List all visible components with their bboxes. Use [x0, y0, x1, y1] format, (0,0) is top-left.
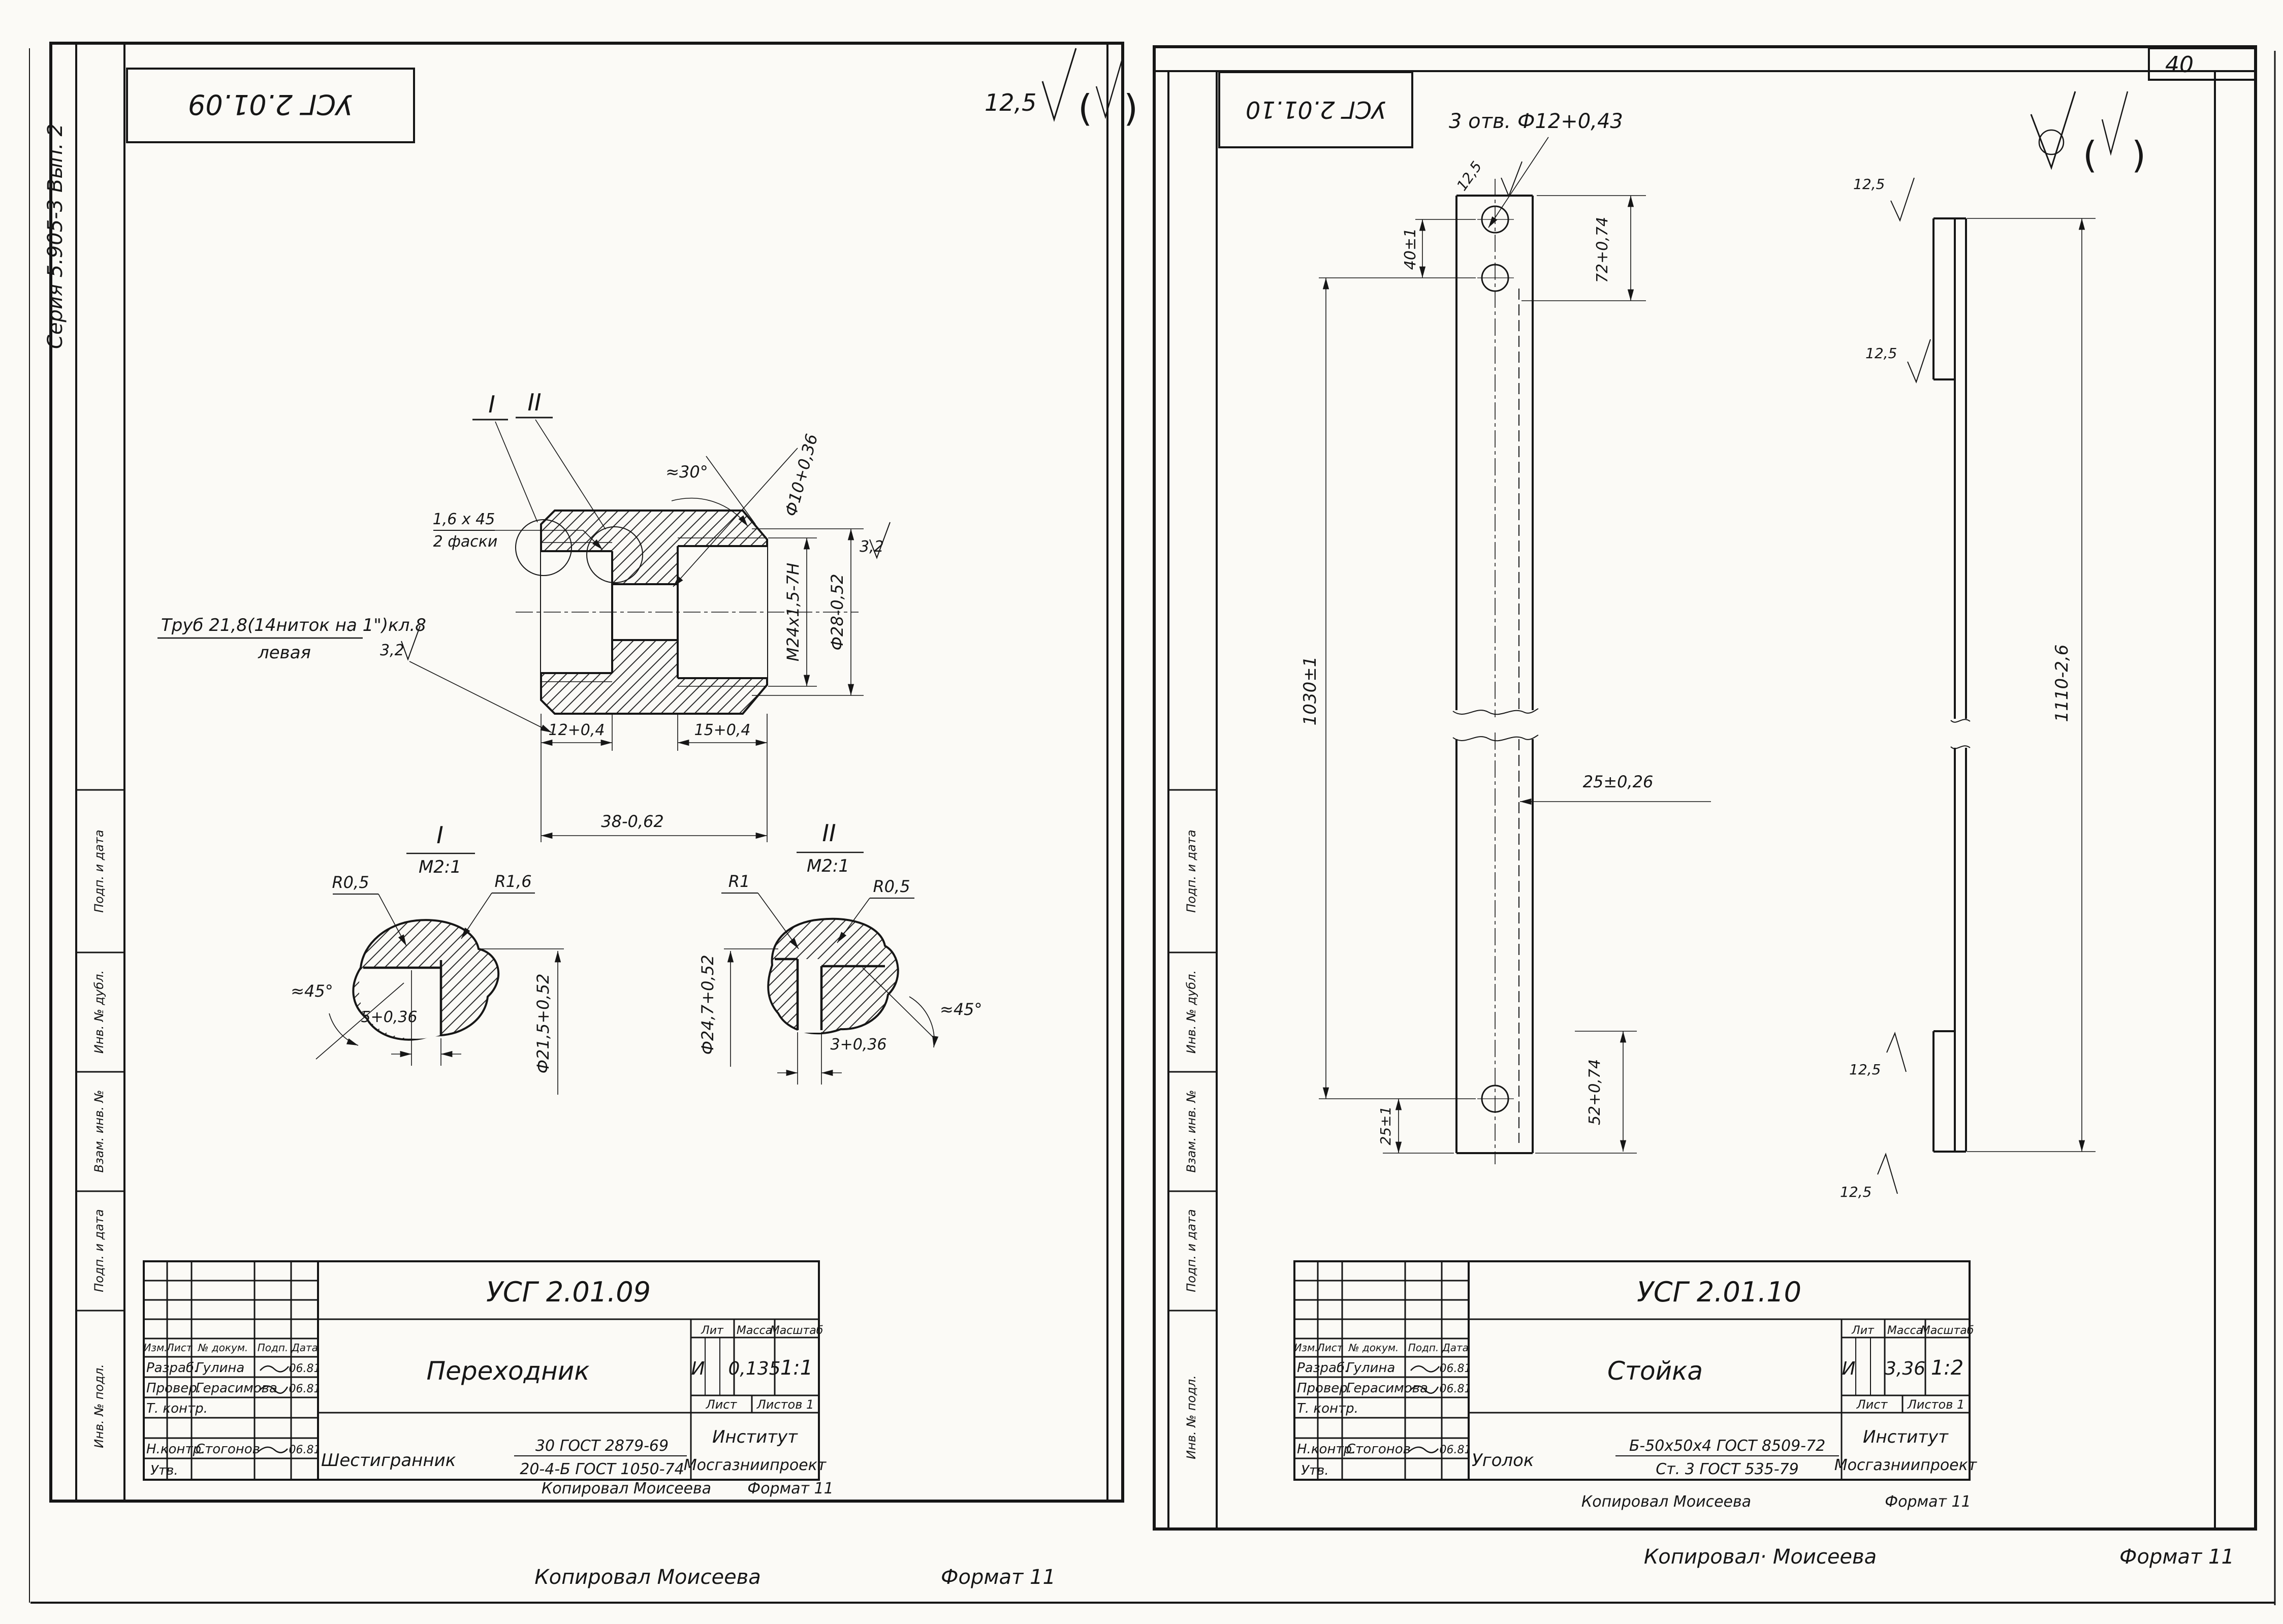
dim-15: 15+0,4 [694, 721, 750, 739]
tb-org-1: Институт [712, 1427, 798, 1447]
tb-doc-code: УСГ 2.01.10 [1637, 1276, 1801, 1308]
left-title-block: Изм. Лист № докум. Подп. Дата Разраб. Гу… [143, 1261, 827, 1480]
detail2-label: II [822, 819, 836, 847]
tb-material-bottom: 20-4-Б ГОСТ 1050-74 [520, 1460, 684, 1478]
svg-text:3,2: 3,2 [860, 538, 884, 556]
tb-row-name: Стогонов [1346, 1442, 1411, 1457]
tb-material-top: Б-50х50х4 ГОСТ 8509-72 [1629, 1437, 1825, 1455]
right-doc-stamp: УСГ 2.01.10 [1219, 72, 1412, 147]
dim-52: 52+0,74 [1586, 1059, 1604, 1125]
album-format-left: Формат 11 [941, 1566, 1056, 1589]
margin-label: Подп. и дата [92, 830, 106, 913]
album-copied-left: Копировал Моисеева [534, 1566, 761, 1589]
tb-row-name: Герасимова [1346, 1381, 1428, 1396]
detail1-radius2: R1,6 [461, 872, 535, 939]
tb-mass-value: 3,36 [1885, 1358, 1925, 1379]
margin-label: Инв. № подл. [92, 1364, 106, 1448]
svg-text:12,5: 12,5 [1865, 345, 1897, 362]
svg-text:R0,5: R0,5 [873, 877, 910, 896]
svg-text:II: II [527, 389, 541, 416]
tb-row-name: Гулина [196, 1360, 244, 1376]
tb-row-date: 06.81 [1440, 1383, 1472, 1395]
margin-label: Подп. и дата [1184, 1209, 1198, 1292]
tb-sheets: Листов 1 [1907, 1397, 1965, 1412]
tb-part-name: Переходник [427, 1356, 590, 1386]
tb-row-label: Утв. [1301, 1463, 1329, 1478]
left-margin-column: Подп. и дата Инв. № дубл. Взам. инв. № П… [76, 790, 124, 1448]
tb-h-doc: № докум. [198, 1342, 248, 1354]
tb-row-label: Т. контр. [1297, 1401, 1358, 1416]
paren-open: ( [2083, 134, 2097, 176]
tb-h-scale: Масштаб [1921, 1324, 1974, 1337]
section-mark-2: II [516, 389, 606, 529]
roughness-value: 12,5 [985, 89, 1036, 116]
svg-text:М24х1,5-7Н: М24х1,5-7Н [783, 563, 803, 661]
album-format-right: Формат 11 [2119, 1545, 2234, 1569]
tb-row-name: Герасимова [196, 1381, 277, 1396]
right-title-block: Изм. Лист № докум. Подп. Дата Разраб. Гу… [1294, 1261, 1977, 1480]
svg-text:3+0,36: 3+0,36 [830, 1036, 886, 1054]
tb-lit-value: И [691, 1358, 705, 1379]
tb-row-label: Разраб. [146, 1360, 198, 1376]
tb-lit-value: И [1842, 1358, 1856, 1379]
svg-text:12,5: 12,5 [1853, 176, 1885, 193]
right-sheet: 40 УСГ 2.01.10 ( ) Подп. и дата Инв. № д… [1154, 47, 2256, 1529]
dim-38: 38-0,62 [601, 812, 664, 831]
right-format-note: Формат 11 [1885, 1493, 1971, 1511]
svg-text:Ф24,7+0,52: Ф24,7+0,52 [698, 955, 717, 1055]
left-stamp-code: УСГ 2.01.09 [188, 88, 353, 120]
detail2-dim3: 3+0,36 [777, 1032, 887, 1085]
stand-side-view: 12,5 12,5 12,5 12,5 52+0,74 1110-2,6 [1535, 176, 2096, 1200]
tb-material-bottom: Ст. 3 ГОСТ 535-79 [1656, 1460, 1799, 1478]
roughness-32-right: 3,2 [860, 522, 890, 558]
tb-row-date: 06.81 [289, 1383, 321, 1395]
detail2-dia: Ф24,7+0,52 [698, 949, 778, 1067]
svg-text:Ф28-0,52: Ф28-0,52 [828, 574, 847, 650]
tb-row-date: 06.81 [289, 1444, 321, 1456]
tb-h-sign: Подп. [258, 1342, 289, 1354]
svg-text:левая: левая [258, 643, 311, 663]
drawing-artwork: УСГ 2.01.09 Серия 5.905-3 Вып. 2 12,5 ( … [0, 0, 2283, 1624]
detail-view-2: II М2:1 R1 R0,5 ≈45° [698, 819, 982, 1085]
tb-h-mass: Масса [1887, 1324, 1923, 1337]
tb-row-label: Провер. [1297, 1381, 1352, 1396]
svg-text:≈45°: ≈45° [940, 1000, 982, 1019]
tb-h-mass: Масса [737, 1324, 772, 1337]
signature [1409, 1447, 1438, 1453]
hole-roughness: 12,5 [1453, 158, 1485, 194]
tb-h-list: Лист [166, 1342, 193, 1354]
tb-org-2: Мосгазниипроект [684, 1456, 827, 1474]
svg-text:≈45°: ≈45° [291, 981, 333, 1001]
tb-row-label: Утв. [150, 1463, 178, 1478]
margin-label: Взам. инв. № [1184, 1090, 1198, 1173]
pipe-thread-note: Труб 21,8(14ниток на 1")кл.8 левая 3,2 [157, 615, 552, 733]
left-copied-note: Копировал Моисеева [542, 1480, 711, 1498]
svg-text:R1,6: R1,6 [494, 872, 531, 891]
svg-text:Ф10+0,36: Ф10+0,36 [781, 432, 821, 518]
dim-12: 12+0,4 [548, 721, 605, 739]
svg-text:2 фаски: 2 фаски [433, 533, 498, 551]
margin-label: Инв. № подл. [1184, 1375, 1198, 1459]
album-footer: Копировал Моисеева Формат 11 Копировал· … [534, 1545, 2234, 1589]
detail1-scale: М2:1 [419, 857, 461, 877]
tb-row-date: 06.81 [1440, 1362, 1472, 1375]
length-dims: 12+0,4 15+0,4 38-0,62 [541, 714, 767, 842]
side-dims: 52+0,74 1110-2,6 [1535, 218, 2096, 1153]
detail-view-1: I М2:1 R0,5 R1,6 ≈45° [291, 821, 564, 1095]
svg-text:Труб 21,8(14ниток на 1")кл.8: Труб 21,8(14ниток на 1")кл.8 [161, 615, 426, 635]
margin-label: Инв. № дубл. [1184, 970, 1198, 1054]
detail2-scale: М2:1 [807, 856, 849, 876]
margin-label: Взам. инв. № [92, 1090, 106, 1173]
signature [1411, 1366, 1439, 1372]
adapter-section-view: I II ≈30° Ф10+0,36 [157, 389, 890, 842]
dim-1030: 1030±1 [1300, 656, 1320, 726]
svg-text:5+0,36: 5+0,36 [361, 1008, 417, 1026]
svg-text:Ф21,5+0,52: Ф21,5+0,52 [533, 974, 553, 1074]
svg-text:≈30°: ≈30° [665, 462, 708, 482]
tb-row-label: Разраб. [1297, 1360, 1349, 1376]
right-roughness-general: ( ) [2031, 91, 2146, 176]
scanned-drawing-album-page: УСГ 2.01.09 Серия 5.905-3 Вып. 2 12,5 ( … [0, 0, 2283, 1624]
tb-h-scale: Масштаб [770, 1324, 823, 1337]
tb-material-prefix: Шестигранник [321, 1450, 456, 1471]
side-roughness-marks: 12,5 12,5 12,5 12,5 [1840, 176, 1930, 1200]
stand-front-view: 3 отв. Ф12+0,43 12,5 40±1 1030±1 25±1 25… [1300, 110, 1711, 1164]
left-format-note: Формат 11 [747, 1480, 833, 1498]
tb-h-date: Дата [291, 1342, 318, 1354]
svg-text:I: I [488, 391, 495, 418]
dim-72: 72+0,74 [1594, 217, 1611, 283]
tb-row-label: Т. контр. [146, 1401, 208, 1416]
holes-callout: 3 отв. Ф12+0,43 12,5 [1449, 110, 1623, 228]
dim-1110: 1110-2,6 [2052, 645, 2072, 722]
paren-close: ) [1124, 87, 1138, 130]
tb-org-1: Институт [1863, 1427, 1949, 1447]
signature [260, 1366, 289, 1372]
left-doc-stamp: УСГ 2.01.09 [127, 69, 414, 142]
tb-h-izm: Изм. [143, 1342, 167, 1354]
margin-label: Инв. № дубл. [92, 970, 106, 1054]
tb-row-label: Провер. [146, 1381, 201, 1396]
tb-h-date: Дата [1442, 1342, 1469, 1354]
dim-40: 40±1 [1402, 228, 1419, 270]
tb-h-sign: Подп. [1408, 1342, 1439, 1354]
right-copied-note: Копировал Моисеева [1581, 1493, 1751, 1511]
paren-close: ) [2132, 134, 2146, 176]
left-roughness-general: 12,5 ( ) [985, 48, 1138, 130]
tb-sheet: Лист [706, 1397, 738, 1412]
dim-25b: 25±0,26 [1583, 772, 1654, 791]
tb-h-lit: Лит [701, 1324, 724, 1337]
tb-row-name: Гулина [1346, 1360, 1395, 1376]
svg-text:R1: R1 [728, 872, 750, 891]
paren-open: ( [1078, 87, 1092, 130]
front-dims: 40±1 1030±1 25±1 25±0,26 72+0,74 [1300, 196, 1711, 1153]
svg-text:R0,5: R0,5 [332, 873, 369, 892]
page-number: 40 [2165, 52, 2194, 78]
tb-row-name: Стогонов [196, 1442, 260, 1457]
tb-row-date: 06.81 [1440, 1444, 1472, 1456]
tb-row-date: 06.81 [289, 1362, 321, 1375]
tb-h-list: Лист [1317, 1342, 1344, 1354]
tb-h-izm: Изм. [1294, 1342, 1318, 1354]
right-stamp-code: УСГ 2.01.10 [1246, 96, 1386, 123]
right-margin-column: Подп. и дата Инв. № дубл. Взам. инв. № П… [1168, 790, 1217, 1459]
tb-scale-value: 1:2 [1931, 1356, 1963, 1380]
signature [258, 1447, 288, 1453]
tb-doc-code: УСГ 2.01.09 [486, 1276, 651, 1308]
tb-h-lit: Лит [1851, 1324, 1875, 1337]
tb-sheets: Листов 1 [756, 1397, 814, 1412]
detail1-label: I [436, 821, 443, 849]
tb-h-doc: № докум. [1348, 1342, 1399, 1354]
tb-material-top: 30 ГОСТ 2879-69 [535, 1437, 669, 1455]
page-number-box: 40 [2149, 48, 2256, 80]
tb-mass-value: 0,135 [728, 1358, 780, 1379]
tb-material-prefix: Уголок [1472, 1450, 1534, 1471]
album-copied-right: Копировал· Моисеева [1644, 1545, 1877, 1569]
tb-part-name: Стойка [1607, 1356, 1703, 1386]
tb-org-2: Мосгазниипроект [1834, 1456, 1978, 1474]
tb-scale-value: 1:1 [780, 1356, 813, 1380]
left-sheet: УСГ 2.01.09 Серия 5.905-3 Вып. 2 12,5 ( … [44, 43, 1138, 1501]
svg-text:3 отв. Ф12+0,43: 3 отв. Ф12+0,43 [1449, 110, 1623, 133]
margin-label: Подп. и дата [1184, 830, 1198, 913]
svg-text:12,5: 12,5 [1840, 1184, 1872, 1200]
dim-25a: 25±1 [1377, 1106, 1394, 1145]
svg-text:12,5: 12,5 [1849, 1061, 1881, 1078]
margin-label: Подп. и дата [92, 1209, 106, 1292]
svg-text:1,6 х 45: 1,6 х 45 [433, 511, 495, 528]
series-note: Серия 5.905-3 Вып. 2 [44, 123, 67, 349]
svg-text:3,2: 3,2 [380, 642, 404, 659]
tb-sheet: Лист [1856, 1397, 1888, 1412]
